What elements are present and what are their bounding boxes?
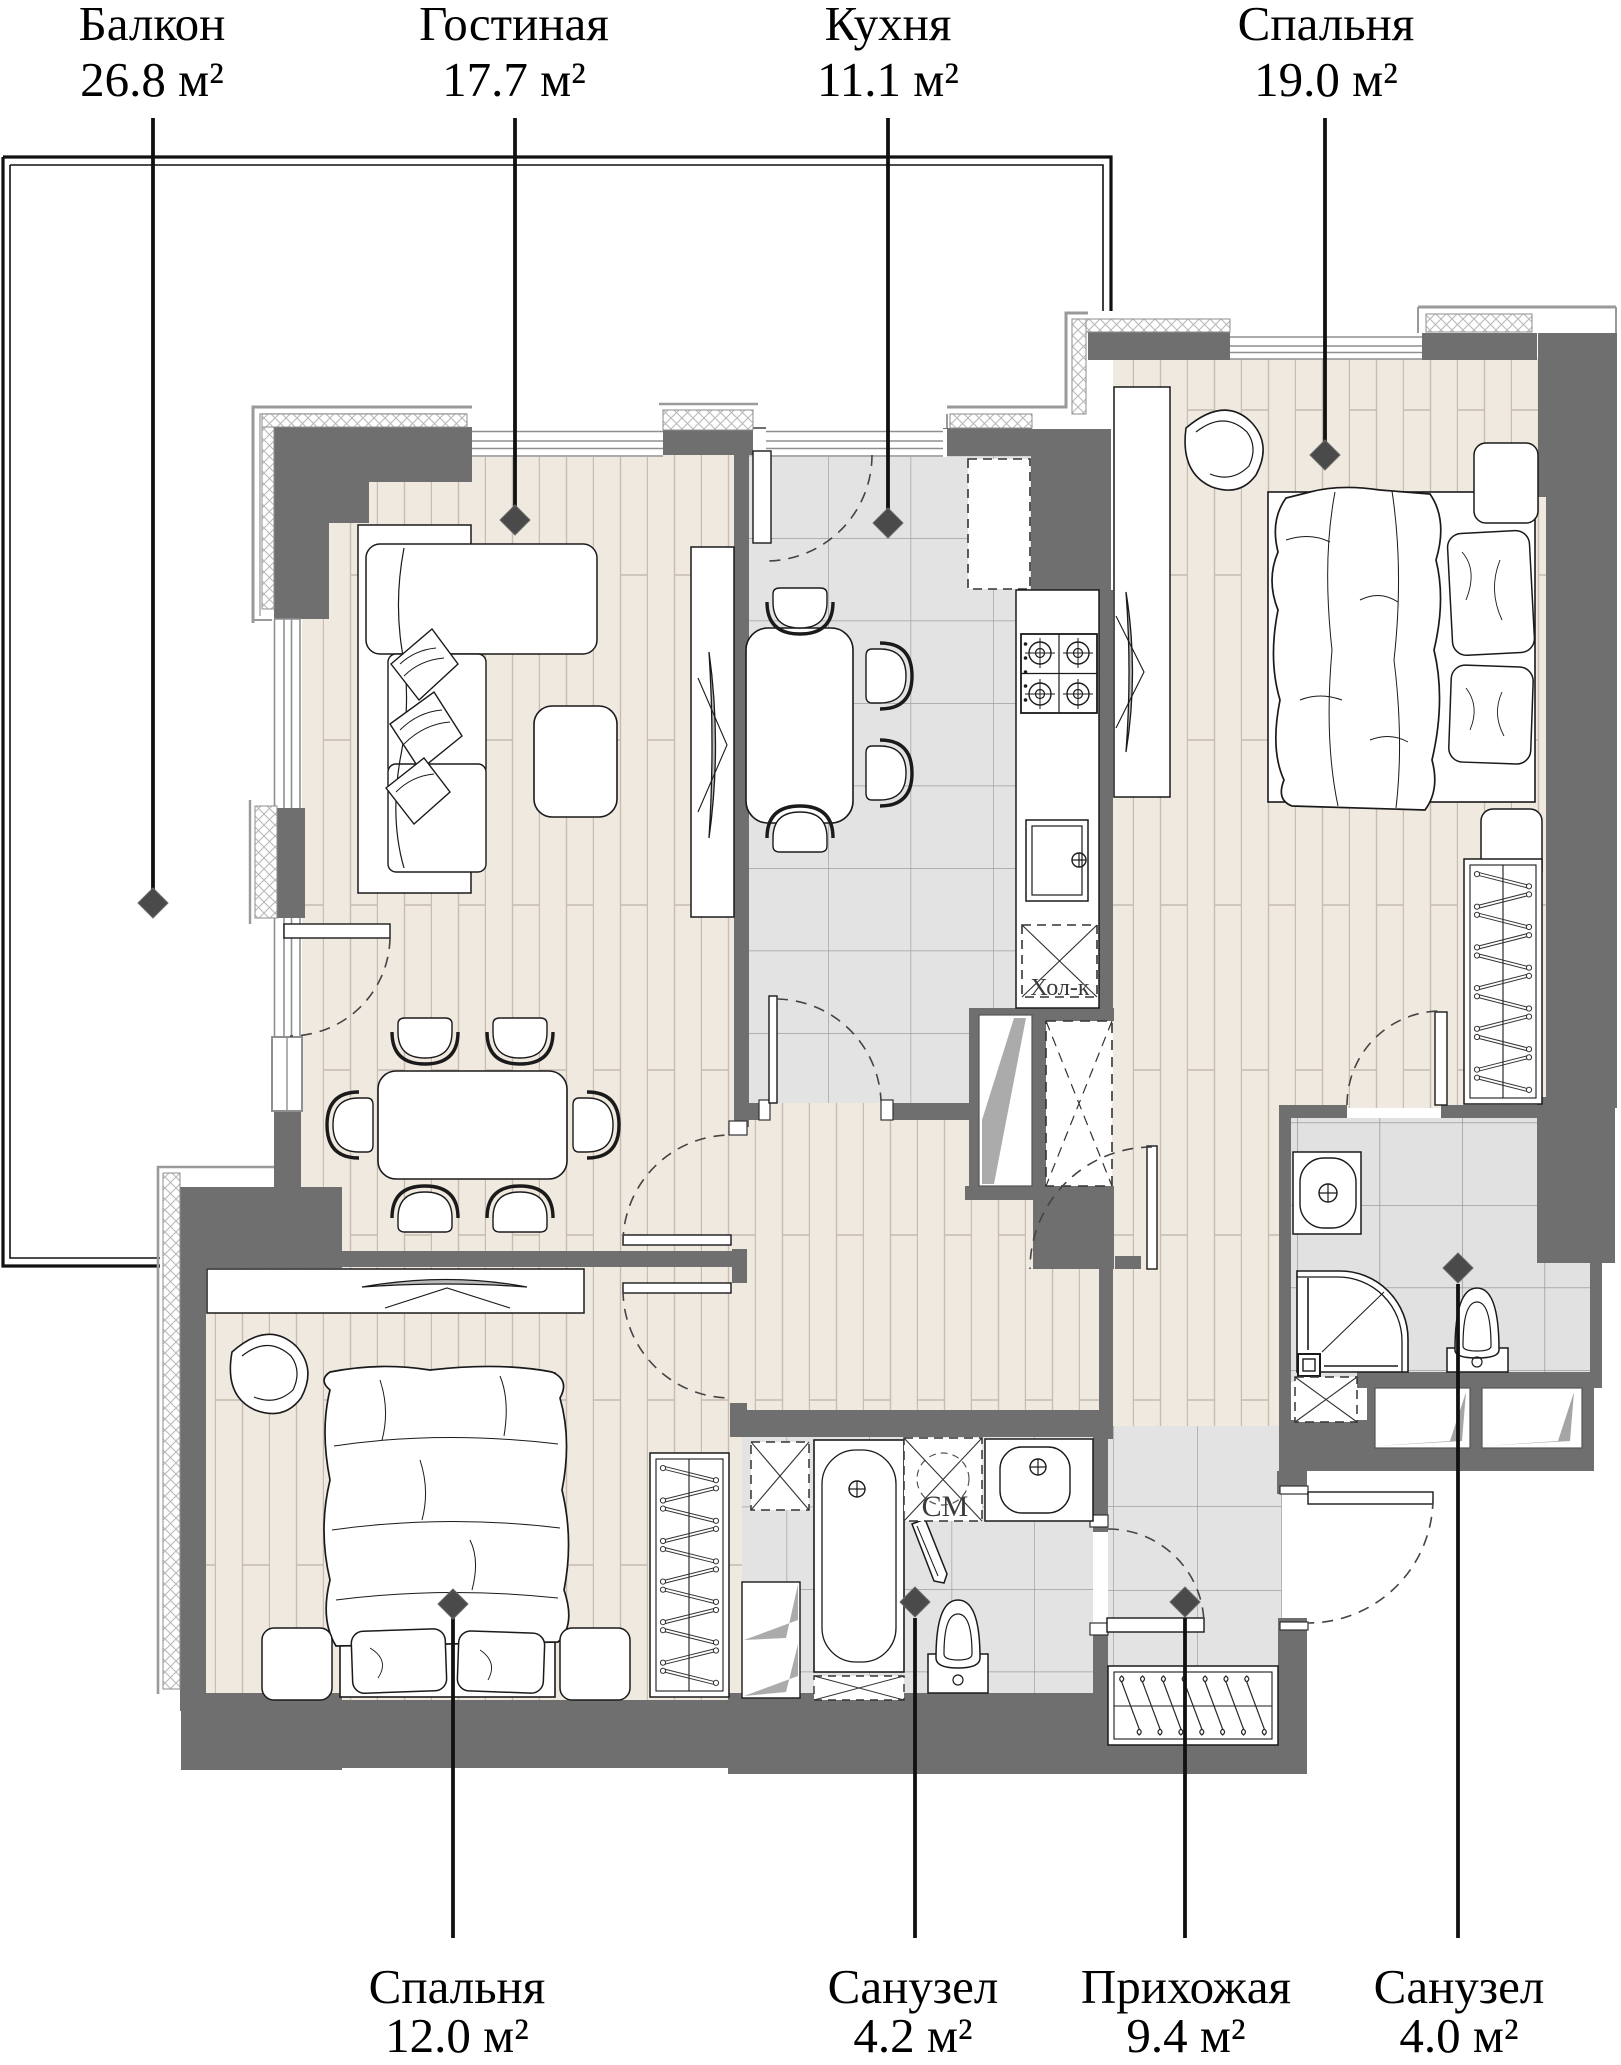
svg-text:СМ: СМ (922, 1490, 969, 1523)
svg-text:9.4 м²: 9.4 м² (1126, 2008, 1245, 2060)
svg-text:4.2 м²: 4.2 м² (853, 2008, 972, 2060)
svg-text:Прихожая: Прихожая (1081, 1959, 1291, 2014)
svg-text:Санузел: Санузел (1374, 1959, 1545, 2014)
svg-text:12.0 м²: 12.0 м² (385, 2008, 529, 2060)
svg-text:Спальня: Спальня (369, 1959, 546, 2014)
svg-text:17.7 м²: 17.7 м² (442, 52, 586, 107)
svg-text:Гостиная: Гостиная (419, 0, 609, 51)
svg-text:Кухня: Кухня (825, 0, 952, 51)
svg-text:Санузел: Санузел (828, 1959, 999, 2014)
svg-text:11.1 м²: 11.1 м² (817, 52, 959, 107)
svg-text:Балкон: Балкон (79, 0, 226, 51)
svg-text:26.8 м²: 26.8 м² (80, 52, 224, 107)
svg-text:Хол-к: Хол-к (1030, 975, 1089, 1001)
svg-text:4.0 м²: 4.0 м² (1399, 2008, 1518, 2060)
svg-text:19.0 м²: 19.0 м² (1254, 52, 1398, 107)
svg-text:Спальня: Спальня (1238, 0, 1415, 51)
